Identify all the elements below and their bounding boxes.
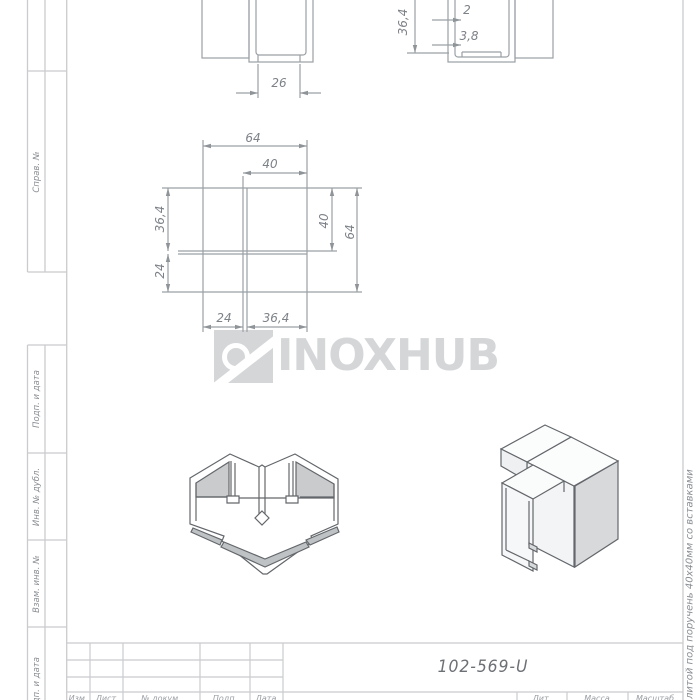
watermark-brand-text: INOXHUB xyxy=(277,331,499,381)
title-block-masshtab: Масштаб xyxy=(636,694,674,700)
isometric-open-view xyxy=(190,454,339,574)
dim-plan-top-64: 64 xyxy=(245,131,260,145)
title-block-data: Дата xyxy=(256,694,277,700)
side-note-part-name: ой литой под поручень 40х40мм со вставка… xyxy=(685,469,696,700)
dim-plan-bottom-24: 24 xyxy=(216,311,231,325)
dim-2: 2 xyxy=(463,3,471,17)
margin-label-podp-i-data-1: Подп. и дата xyxy=(32,370,42,428)
section-view-right xyxy=(407,0,553,62)
title-block-izm: Изм. xyxy=(69,694,88,700)
inoxhub-logo-icon xyxy=(214,330,273,383)
margin-label-sprav-n: Справ. № xyxy=(32,151,42,192)
dim-plan-right-64: 64 xyxy=(343,224,357,239)
title-block-massa: Масса xyxy=(584,694,610,700)
title-block-list: Лист xyxy=(96,694,116,700)
margin-label-podp-i-data-2: Подп. и дата xyxy=(32,657,42,700)
section-view-left xyxy=(202,0,321,98)
title-block-podp: Подп. xyxy=(213,694,237,700)
title-block-n-dokum: № докум. xyxy=(141,694,180,700)
dim-plan-right-40: 40 xyxy=(317,213,331,228)
dim-plan-bottom-36-4: 36,4 xyxy=(263,311,290,325)
dim-plan-left-24: 24 xyxy=(153,263,167,278)
dim-3-8: 3,8 xyxy=(459,29,478,43)
title-block-lit: Лит. xyxy=(533,694,551,700)
isometric-solid-view xyxy=(501,425,618,571)
title-block-designation: 102-569-U xyxy=(438,657,529,677)
dim-plan-top-40: 40 xyxy=(262,157,277,171)
dim-36-4-section: 36,4 xyxy=(396,9,410,36)
dim-26: 26 xyxy=(271,76,286,90)
dim-plan-left-36-4: 36,4 xyxy=(153,206,167,233)
margin-label-vzam-inv-n: Взам. инв. № xyxy=(32,555,42,613)
drawing-sheet: { "watermark": { "brand": "INOXHUB" }, "… xyxy=(0,0,700,700)
margin-label-inv-n-dubl: Инв. № дубл. xyxy=(32,468,42,526)
title-block-grid xyxy=(67,643,683,700)
